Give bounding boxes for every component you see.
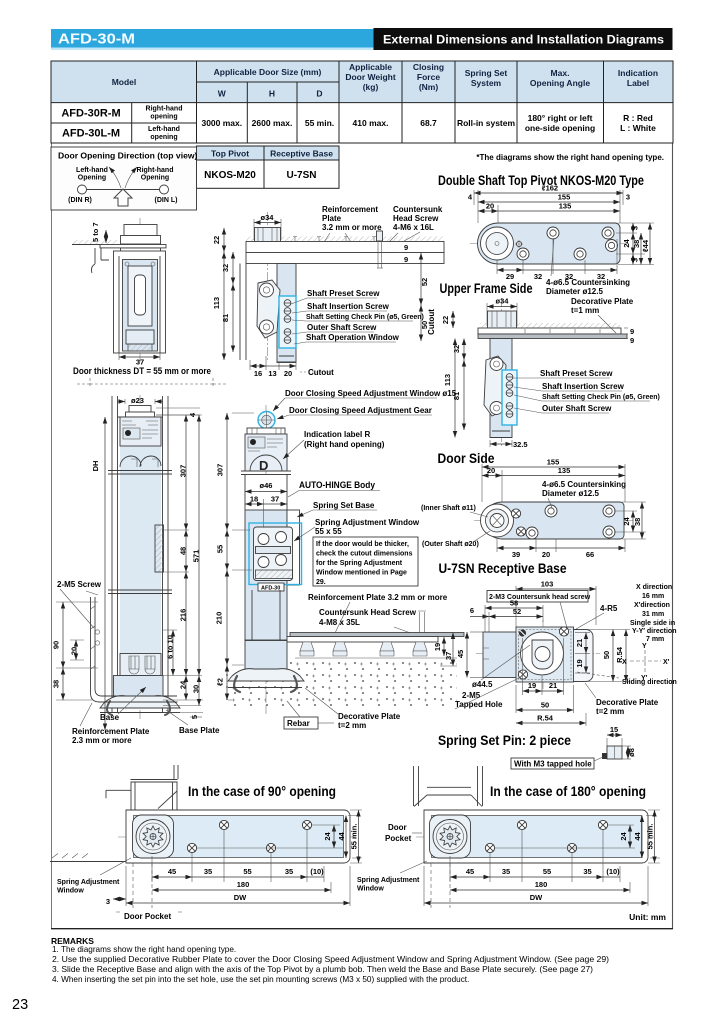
svg-text:Decorative Plate: Decorative Plate (571, 297, 634, 306)
svg-text:U-7SN Receptive Base: U-7SN Receptive Base (439, 560, 567, 576)
svg-text:29.: 29. (316, 579, 326, 586)
svg-text:4-M8 x 35L: 4-M8 x 35L (319, 618, 360, 627)
svg-text:16: 16 (254, 369, 262, 378)
svg-text:2. Use the supplied Decorative: 2. Use the supplied Decorative Rubber Pl… (52, 955, 609, 964)
svg-text:24: 24 (323, 832, 332, 841)
svg-text:Countersunk: Countersunk (393, 205, 443, 214)
svg-text:180: 180 (535, 880, 548, 889)
svg-text:Diameter ø12.5: Diameter ø12.5 (542, 489, 599, 498)
svg-text:24: 24 (179, 680, 188, 689)
svg-text:90: 90 (52, 641, 61, 649)
svg-text:Shaft Setting Check Pin (ø5, G: Shaft Setting Check Pin (ø5, Green) (306, 314, 424, 321)
svg-text:Indication label R: Indication label R (304, 430, 370, 439)
svg-text:20: 20 (70, 647, 79, 655)
svg-text:32: 32 (221, 264, 230, 272)
svg-text:13: 13 (268, 369, 276, 378)
svg-text:t=1 mm: t=1 mm (571, 306, 599, 315)
svg-text:ℓ44: ℓ44 (641, 239, 650, 252)
svg-text:37: 37 (271, 495, 279, 504)
svg-text:24: 24 (619, 832, 628, 841)
svg-text:68.7: 68.7 (420, 118, 437, 128)
svg-text:Opening: Opening (141, 175, 169, 182)
svg-text:Spring Adjustment Window: Spring Adjustment Window (315, 518, 420, 527)
svg-text:Cutout: Cutout (308, 368, 334, 377)
svg-text:180° right or left: 180° right or left (528, 113, 593, 123)
svg-text:DH: DH (91, 461, 100, 472)
svg-text:ø23: ø23 (131, 396, 144, 405)
svg-text:Door thickness DT = 55 mm or m: Door thickness DT = 55 mm or more (73, 366, 211, 377)
svg-text:38: 38 (632, 240, 641, 248)
svg-text:3: 3 (106, 897, 110, 906)
svg-text:Opening Angle: Opening Angle (530, 78, 590, 88)
svg-text:20: 20 (542, 550, 550, 559)
svg-text:Plate: Plate (322, 214, 342, 223)
svg-text:31 mm: 31 mm (642, 611, 664, 618)
svg-text:4-ø6.5 Countersinking: 4-ø6.5 Countersinking (546, 278, 630, 287)
svg-text:210: 210 (215, 612, 224, 625)
svg-text:55: 55 (243, 867, 251, 876)
svg-text:4-R5: 4-R5 (600, 604, 618, 613)
svg-text:113: 113 (212, 297, 221, 309)
svg-text:AFD-30: AFD-30 (261, 586, 280, 592)
svg-text:AFD-30-M: AFD-30-M (58, 32, 135, 48)
svg-text:Spring Adjustment: Spring Adjustment (357, 877, 420, 884)
svg-text:L : White: L : White (620, 123, 656, 133)
svg-text:Head Screw: Head Screw (393, 214, 439, 223)
svg-text:Spring Set Pin: 2 piece: Spring Set Pin: 2 piece (438, 732, 571, 748)
svg-text:Door Side: Door Side (438, 450, 495, 466)
svg-text:66: 66 (586, 550, 594, 559)
svg-text:check the cutout dimensions: check the cutout dimensions (316, 551, 413, 558)
svg-text:ø34: ø34 (261, 213, 275, 222)
svg-text:Spring Adjustment: Spring Adjustment (57, 879, 120, 886)
svg-text:Unit: mm: Unit: mm (629, 912, 666, 922)
svg-text:Reinforcement Plate 3.2 mm or: Reinforcement Plate 3.2 mm or more (308, 593, 448, 602)
svg-text:Pocket: Pocket (385, 834, 412, 843)
svg-text:135: 135 (559, 202, 572, 211)
svg-text:15: 15 (610, 725, 618, 734)
svg-text:Door Pocket: Door Pocket (124, 912, 171, 921)
svg-text:20: 20 (486, 202, 494, 211)
svg-text:32: 32 (534, 272, 542, 281)
svg-text:If the door would be thicker,: If the door would be thicker, (316, 541, 409, 548)
svg-text:W: W (218, 89, 227, 99)
svg-text:AFD-30R-M: AFD-30R-M (61, 108, 120, 120)
svg-text:3: 3 (631, 258, 640, 262)
svg-text:3: 3 (631, 226, 640, 230)
svg-text:AUTO-HINGE Body: AUTO-HINGE Body (299, 480, 375, 490)
svg-text:X′direction: X′direction (634, 602, 670, 609)
svg-text:Model: Model (112, 77, 137, 87)
svg-text:Door Closing Speed Adjustment: Door Closing Speed Adjustment Window ø15 (285, 389, 457, 398)
svg-text:19: 19 (433, 643, 442, 651)
svg-text:X′: X′ (663, 659, 670, 666)
svg-text:Label: Label (627, 78, 649, 88)
svg-text:6: 6 (470, 606, 474, 615)
svg-text:7 mm: 7 mm (646, 636, 664, 643)
svg-text:ℓ162: ℓ162 (542, 184, 558, 193)
svg-text:Base: Base (100, 713, 120, 722)
svg-text:55: 55 (543, 867, 551, 876)
svg-text:R : Red: R : Red (623, 113, 653, 123)
svg-text:(kg): (kg) (363, 82, 379, 92)
svg-text:32.5: 32.5 (513, 440, 528, 449)
svg-text:External Dimensions and Instal: External Dimensions and Installation Dia… (383, 33, 664, 47)
svg-text:Y-Y′ direction: Y-Y′ direction (632, 628, 676, 635)
svg-text:X direction: X direction (636, 584, 672, 591)
svg-text:32: 32 (452, 345, 461, 353)
svg-text:H: H (269, 89, 275, 99)
svg-text:Right-hand: Right-hand (137, 167, 174, 174)
svg-text:(Inner Shaft ø11): (Inner Shaft ø11) (421, 505, 476, 512)
svg-text:Receptive Base: Receptive Base (270, 149, 333, 159)
svg-text:Window mentioned in Page: Window mentioned in Page (316, 570, 407, 577)
svg-text:Force: Force (417, 72, 440, 82)
svg-text:Opening: Opening (78, 175, 106, 182)
svg-text:(DIN R): (DIN R) (68, 197, 92, 204)
svg-text:45: 45 (168, 867, 176, 876)
svg-text:Applicable Door Size (mm): Applicable Door Size (mm) (214, 67, 322, 77)
svg-text:9: 9 (404, 255, 408, 264)
svg-text:Upper Frame Side: Upper Frame Side (440, 280, 533, 296)
svg-text:22: 22 (441, 316, 450, 324)
svg-text:In the case of 90° opening: In the case of 90° opening (188, 784, 336, 799)
svg-text:55 x 55: 55 x 55 (315, 527, 342, 536)
svg-text:19: 19 (575, 659, 584, 667)
svg-text:5 to 7: 5 to 7 (91, 222, 100, 242)
svg-text:4-ø6.5 Countersinking: 4-ø6.5 Countersinking (542, 480, 626, 489)
svg-text:44: 44 (633, 832, 642, 841)
svg-text:50: 50 (602, 651, 611, 659)
svg-text:Y: Y (642, 643, 647, 650)
svg-text:U-7SN: U-7SN (286, 170, 316, 181)
svg-text:Top Pivot: Top Pivot (211, 149, 249, 159)
svg-text:NKOS-M20: NKOS-M20 (204, 170, 256, 181)
svg-text:22: 22 (212, 236, 221, 244)
svg-text:Door Closing Speed Adjustment: Door Closing Speed Adjustment Gear (289, 406, 432, 415)
svg-text:(10): (10) (606, 867, 620, 876)
svg-text:(Nm): (Nm) (419, 82, 439, 92)
svg-text:3.2 mm or more: 3.2 mm or more (322, 223, 382, 232)
svg-text:Spring Set Base: Spring Set Base (313, 501, 375, 510)
svg-text:(Right hand opening): (Right hand opening) (304, 440, 385, 449)
svg-text:50: 50 (541, 701, 549, 710)
svg-text:Shaft Insertion Screw: Shaft Insertion Screw (542, 382, 625, 391)
svg-text:Diameter ø12.5: Diameter ø12.5 (546, 287, 603, 296)
svg-text:With M3 tapped hole: With M3 tapped hole (514, 760, 592, 769)
svg-text:3000 max.: 3000 max. (201, 118, 242, 128)
svg-text:135: 135 (558, 466, 571, 475)
svg-text:6 to 10: 6 to 10 (166, 635, 175, 659)
svg-text:20: 20 (284, 369, 292, 378)
svg-text:2600 max.: 2600 max. (252, 118, 293, 128)
svg-text:2-M3 Countersunk head screw: 2-M3 Countersunk head screw (489, 594, 591, 601)
svg-text:Countersunk Head Screw: Countersunk Head Screw (319, 608, 417, 617)
svg-text:38: 38 (52, 680, 61, 688)
svg-text:D: D (316, 89, 322, 99)
svg-text:Reinforcement: Reinforcement (322, 205, 378, 214)
svg-text:Tapped Hole: Tapped Hole (455, 700, 503, 709)
svg-text:Outer Shaft Screw: Outer Shaft Screw (542, 404, 612, 413)
svg-text:Applicable: Applicable (349, 62, 392, 72)
svg-text:55 min.: 55 min. (305, 118, 334, 128)
svg-text:(Outer Shaft ø20): (Outer Shaft ø20) (422, 541, 479, 548)
svg-text:Window: Window (357, 886, 384, 893)
svg-text:Spring Set: Spring Set (465, 68, 508, 78)
svg-text:35: 35 (204, 867, 212, 876)
svg-text:21: 21 (549, 681, 557, 690)
svg-text:Indication: Indication (618, 68, 658, 78)
svg-text:for the Spring Adjustment: for the Spring Adjustment (316, 560, 403, 567)
svg-text:ø46: ø46 (260, 481, 273, 490)
svg-text:Window: Window (57, 888, 84, 895)
svg-text:ø44.5: ø44.5 (472, 680, 493, 689)
svg-text:Single side in: Single side in (630, 620, 675, 627)
svg-text:45: 45 (466, 867, 474, 876)
svg-text:19: 19 (528, 681, 536, 690)
svg-text:20: 20 (487, 466, 495, 475)
svg-text:Shaft Insertion Screw: Shaft Insertion Screw (307, 302, 390, 311)
svg-text:410 max.: 410 max. (353, 118, 389, 128)
svg-text:4-M6 x 16L: 4-M6 x 16L (393, 223, 434, 232)
svg-text:System: System (471, 78, 502, 88)
svg-text:55 min.: 55 min. (350, 824, 359, 850)
svg-text:18: 18 (250, 495, 258, 504)
svg-text:Door: Door (388, 823, 407, 832)
svg-text:one-side opening: one-side opening (525, 123, 595, 133)
svg-text:9: 9 (630, 327, 634, 336)
svg-text:55 min.: 55 min. (646, 824, 655, 850)
svg-text:Outer Shaft Screw: Outer Shaft Screw (307, 323, 377, 332)
svg-text:t=2 mm: t=2 mm (338, 721, 366, 730)
svg-text:opening: opening (150, 114, 177, 121)
svg-text:571: 571 (192, 550, 201, 563)
svg-text:Shaft Setting Check Pin (ø5, G: Shaft Setting Check Pin (ø5, Green) (542, 394, 660, 401)
svg-text:Rebar: Rebar (287, 719, 310, 728)
svg-text:103: 103 (541, 580, 554, 589)
svg-text:Left-hand: Left-hand (76, 167, 108, 174)
svg-text:Door Weight: Door Weight (345, 72, 396, 82)
svg-text:55: 55 (216, 545, 225, 553)
svg-text:2.3 mm or more: 2.3 mm or more (72, 736, 132, 745)
svg-text:48: 48 (179, 547, 188, 555)
svg-text:Cutout: Cutout (427, 309, 436, 335)
svg-text:52: 52 (420, 278, 429, 286)
svg-text:3: 3 (626, 193, 630, 202)
svg-text:39: 39 (512, 550, 520, 559)
svg-text:Max.: Max. (551, 68, 570, 78)
svg-text:307: 307 (179, 465, 188, 478)
svg-text:Door Opening Direction (top vi: Door Opening Direction (top view) (58, 151, 198, 161)
svg-text:16 mm: 16 mm (642, 593, 664, 600)
svg-text:Left-hand: Left-hand (148, 126, 180, 133)
svg-text:Sliding direction: Sliding direction (622, 679, 677, 686)
svg-text:ℓ2: ℓ2 (216, 678, 225, 686)
svg-text:3. Slide the Receptive Base an: 3. Slide the Receptive Base and align wi… (52, 965, 593, 974)
svg-text:38: 38 (633, 518, 642, 526)
svg-text:180: 180 (237, 880, 250, 889)
svg-text:DW: DW (530, 893, 543, 902)
svg-text:52: 52 (513, 607, 521, 616)
svg-text:81: 81 (221, 314, 230, 322)
svg-text:Roll-in system: Roll-in system (457, 118, 516, 128)
svg-text:In the case of 180° opening: In the case of 180° opening (490, 784, 646, 799)
svg-text:155: 155 (558, 193, 571, 202)
svg-text:2-M5: 2-M5 (462, 691, 481, 700)
svg-text:23: 23 (12, 997, 28, 1013)
svg-text:1. The diagrams show the right: 1. The diagrams show the right hand open… (52, 945, 236, 954)
svg-text:30: 30 (192, 685, 201, 693)
svg-text:Right-hand: Right-hand (146, 106, 183, 113)
svg-text:307: 307 (216, 464, 225, 477)
svg-text:AFD-30L-M: AFD-30L-M (62, 128, 120, 140)
svg-text:Decorative Plate: Decorative Plate (596, 698, 659, 707)
svg-text:X: X (622, 659, 627, 666)
svg-text:21: 21 (575, 639, 584, 647)
svg-text:Shaft Operation Window: Shaft Operation Window (306, 333, 400, 342)
svg-text:35: 35 (285, 867, 293, 876)
svg-text:R.54: R.54 (537, 714, 554, 723)
svg-text:Shaft Preset Screw: Shaft Preset Screw (540, 369, 613, 378)
svg-text:Reinforcement Plate: Reinforcement Plate (72, 727, 150, 736)
svg-text:ø8: ø8 (627, 748, 636, 757)
svg-text:35: 35 (583, 867, 591, 876)
svg-text:44: 44 (337, 832, 346, 841)
svg-text:24: 24 (622, 239, 631, 248)
svg-text:24: 24 (622, 517, 631, 526)
svg-text:Y′: Y′ (641, 675, 648, 682)
svg-text:216: 216 (179, 609, 188, 622)
svg-text:*The diagrams show the right h: *The diagrams show the right hand openin… (476, 153, 664, 162)
svg-text:113: 113 (443, 374, 452, 386)
svg-text:opening: opening (150, 134, 177, 141)
svg-text:Base Plate: Base Plate (179, 726, 220, 735)
svg-text:2-M5 Screw: 2-M5 Screw (57, 580, 102, 589)
svg-text:45: 45 (456, 650, 465, 658)
svg-text:Shaft Preset Screw: Shaft Preset Screw (307, 289, 380, 298)
svg-text:35: 35 (502, 867, 510, 876)
svg-text:ø34: ø34 (496, 297, 510, 306)
svg-text:t=2 mm: t=2 mm (596, 707, 624, 716)
svg-text:(10): (10) (310, 867, 324, 876)
svg-text:Decorative Plate: Decorative Plate (338, 712, 401, 721)
svg-text:DW: DW (234, 893, 247, 902)
svg-text:4. When inserting the set pin: 4. When inserting the set pin into the s… (52, 975, 469, 984)
svg-text:Closing: Closing (413, 62, 444, 72)
svg-text:9: 9 (630, 336, 634, 345)
svg-text:9: 9 (404, 243, 408, 252)
svg-text:(DIN L): (DIN L) (155, 197, 178, 204)
